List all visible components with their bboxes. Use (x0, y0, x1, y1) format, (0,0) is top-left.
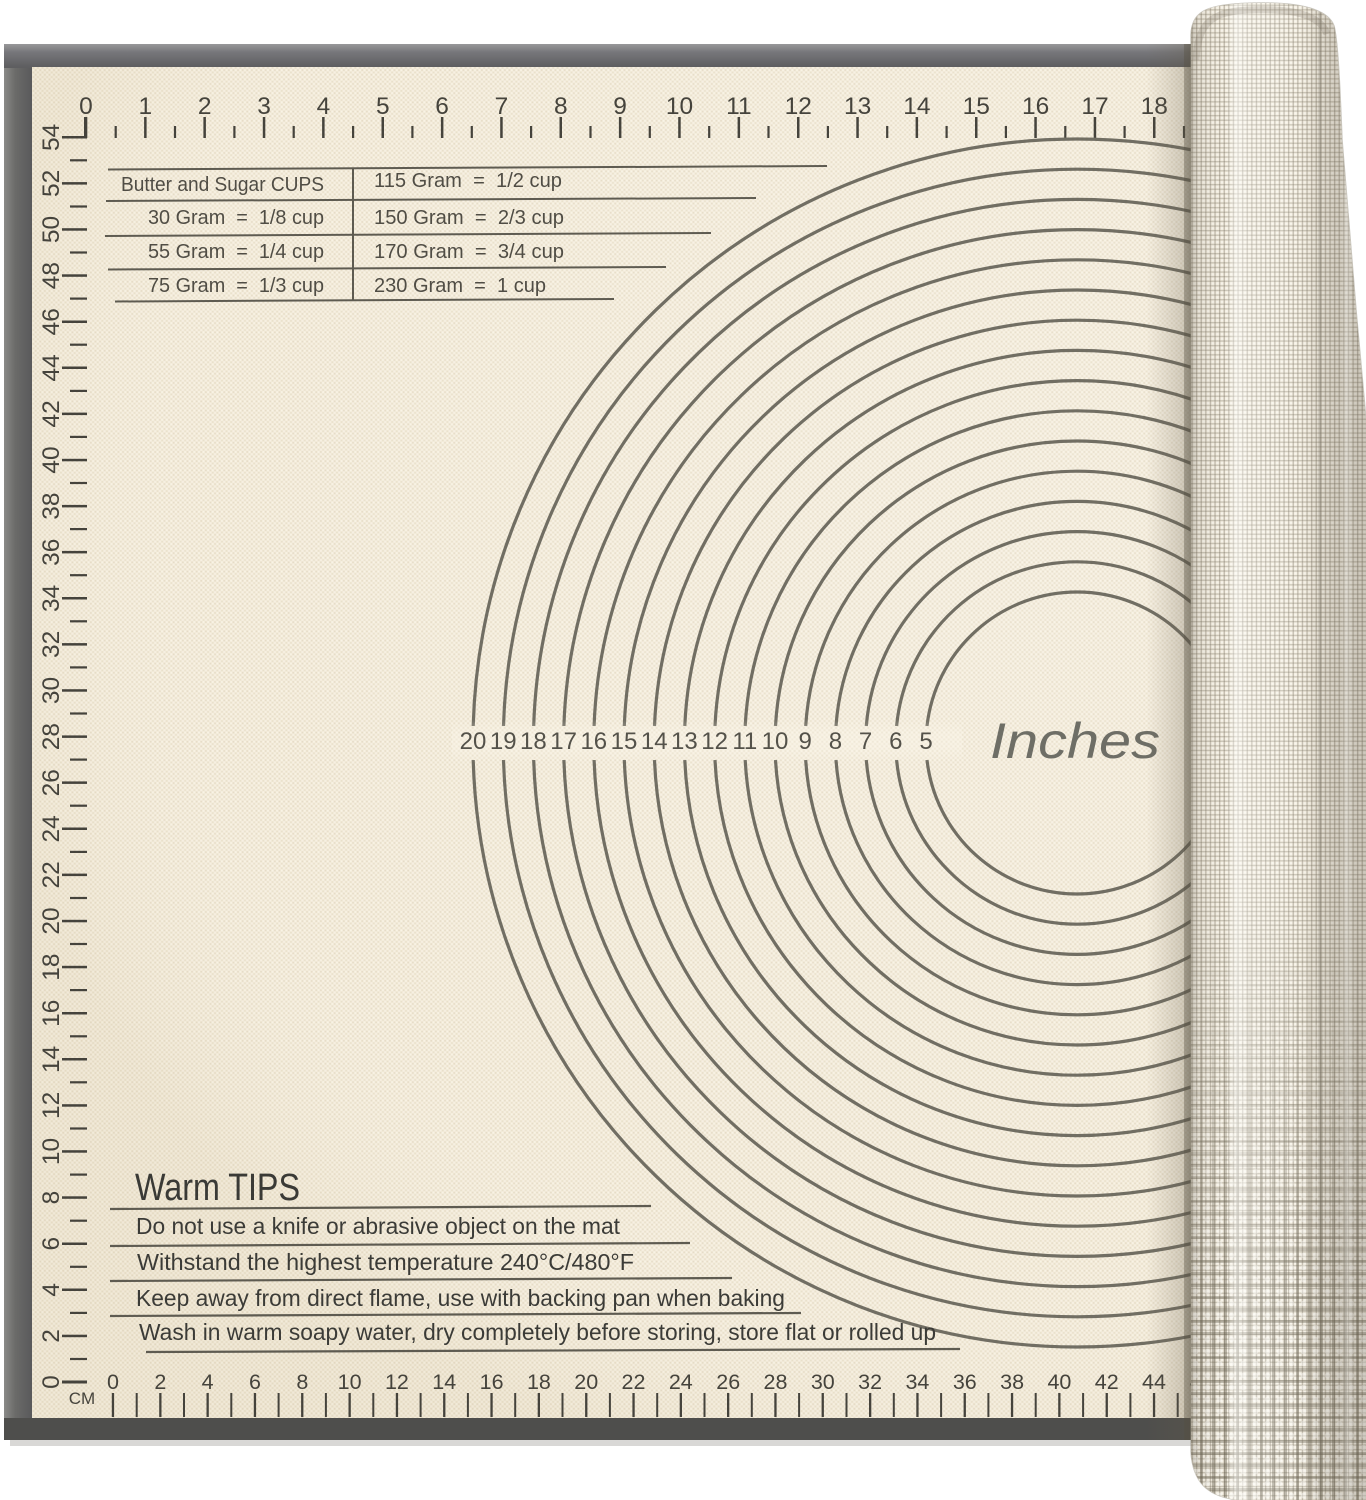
svg-text:2: 2 (154, 1370, 166, 1394)
svg-text:7: 7 (495, 93, 509, 120)
svg-text:42: 42 (1095, 1370, 1119, 1394)
svg-text:52: 52 (38, 170, 65, 197)
svg-text:2: 2 (198, 93, 212, 120)
svg-text:Warm TIPS: Warm TIPS (135, 1167, 300, 1209)
svg-text:2: 2 (38, 1329, 65, 1343)
svg-text:7: 7 (859, 728, 872, 755)
svg-text:0: 0 (107, 1370, 119, 1394)
svg-text:20: 20 (460, 728, 487, 755)
svg-text:54: 54 (38, 124, 65, 151)
svg-text:32: 32 (38, 631, 65, 658)
svg-text:12: 12 (701, 728, 728, 755)
svg-text:20: 20 (574, 1370, 598, 1394)
svg-text:34: 34 (905, 1370, 929, 1394)
svg-text:13: 13 (844, 93, 871, 120)
svg-text:20: 20 (38, 907, 65, 934)
svg-text:40: 40 (1047, 1370, 1071, 1394)
svg-text:6: 6 (38, 1237, 65, 1251)
svg-text:150 Gram = 2/3 cup: 150 Gram = 2/3 cup (374, 206, 564, 229)
svg-text:18: 18 (38, 953, 65, 980)
svg-text:16: 16 (38, 1000, 65, 1027)
svg-text:11: 11 (726, 93, 751, 120)
svg-text:18: 18 (520, 728, 547, 755)
svg-text:5: 5 (376, 93, 390, 120)
svg-text:12: 12 (38, 1092, 65, 1119)
svg-text:0: 0 (79, 93, 93, 120)
svg-text:14: 14 (641, 728, 668, 755)
svg-text:6: 6 (435, 93, 449, 120)
svg-text:14: 14 (38, 1046, 65, 1073)
svg-text:12: 12 (785, 93, 812, 120)
svg-text:17: 17 (1081, 93, 1108, 120)
svg-text:9: 9 (613, 93, 627, 120)
svg-text:0: 0 (38, 1375, 65, 1389)
svg-text:19: 19 (490, 728, 517, 755)
svg-text:16: 16 (480, 1370, 504, 1394)
svg-text:16: 16 (1022, 93, 1049, 120)
svg-text:CM: CM (69, 1389, 95, 1408)
svg-text:115 Gram = 1/2 cup: 115 Gram = 1/2 cup (374, 169, 562, 192)
svg-text:230 Gram = 1 cup: 230 Gram = 1 cup (374, 274, 546, 297)
svg-text:Butter and Sugar CUPS: Butter and Sugar CUPS (121, 173, 324, 196)
svg-text:30: 30 (38, 677, 65, 704)
svg-text:15: 15 (963, 93, 990, 120)
svg-text:38: 38 (1000, 1370, 1024, 1394)
svg-text:28: 28 (38, 723, 65, 750)
svg-text:11: 11 (732, 728, 757, 755)
svg-text:44: 44 (38, 354, 65, 381)
svg-text:Inches: Inches (990, 713, 1160, 769)
svg-text:24: 24 (669, 1370, 693, 1394)
svg-text:18: 18 (527, 1370, 551, 1394)
svg-text:Do not use a knife or abrasive: Do not use a knife or abrasive object on… (136, 1213, 621, 1239)
svg-text:24: 24 (38, 815, 65, 842)
svg-text:32: 32 (858, 1370, 882, 1394)
svg-text:Wash in warm soapy water, dry: Wash in warm soapy water, dry completely… (139, 1319, 936, 1345)
svg-text:16: 16 (580, 728, 607, 755)
svg-text:1: 1 (138, 93, 152, 120)
svg-text:26: 26 (38, 769, 65, 796)
svg-text:75 Gram = 1/3 cup: 75 Gram = 1/3 cup (148, 274, 324, 297)
svg-text:22: 22 (38, 861, 65, 888)
svg-text:10: 10 (666, 93, 693, 120)
svg-text:50: 50 (38, 216, 65, 243)
svg-text:36: 36 (953, 1370, 977, 1394)
svg-text:14: 14 (432, 1370, 456, 1394)
svg-text:9: 9 (799, 728, 812, 755)
svg-text:4: 4 (317, 93, 331, 120)
svg-text:36: 36 (38, 539, 65, 566)
svg-text:17: 17 (550, 728, 577, 755)
svg-text:4: 4 (38, 1283, 65, 1297)
svg-text:42: 42 (38, 400, 65, 427)
svg-text:3: 3 (257, 93, 271, 120)
svg-text:30 Gram = 1/8 cup: 30 Gram = 1/8 cup (148, 206, 324, 229)
svg-text:55 Gram = 1/4 cup: 55 Gram = 1/4 cup (148, 240, 324, 263)
svg-text:34: 34 (38, 585, 65, 612)
svg-text:6: 6 (889, 728, 902, 755)
svg-text:10: 10 (762, 728, 789, 755)
svg-text:10: 10 (38, 1138, 65, 1165)
svg-text:22: 22 (622, 1370, 646, 1394)
svg-text:46: 46 (38, 308, 65, 335)
svg-text:Withstand the highest temperat: Withstand the highest temperature 240°C/… (137, 1249, 634, 1275)
svg-text:15: 15 (611, 728, 638, 755)
svg-text:8: 8 (829, 728, 842, 755)
svg-text:5: 5 (919, 728, 932, 755)
svg-text:28: 28 (764, 1370, 788, 1394)
svg-text:14: 14 (903, 93, 930, 120)
svg-text:12: 12 (385, 1370, 409, 1394)
svg-text:26: 26 (716, 1370, 740, 1394)
svg-text:30: 30 (811, 1370, 835, 1394)
svg-text:8: 8 (38, 1191, 65, 1205)
svg-text:13: 13 (671, 728, 698, 755)
svg-text:8: 8 (554, 93, 568, 120)
svg-text:38: 38 (38, 492, 65, 519)
svg-text:40: 40 (38, 446, 65, 473)
svg-text:Keep away from direct flame, u: Keep away from direct flame, use with ba… (136, 1285, 785, 1311)
svg-text:48: 48 (38, 262, 65, 289)
svg-text:170 Gram = 3/4 cup: 170 Gram = 3/4 cup (374, 240, 564, 263)
svg-text:4: 4 (202, 1370, 214, 1394)
svg-text:6: 6 (249, 1370, 261, 1394)
svg-text:8: 8 (296, 1370, 308, 1394)
svg-text:10: 10 (338, 1370, 362, 1394)
